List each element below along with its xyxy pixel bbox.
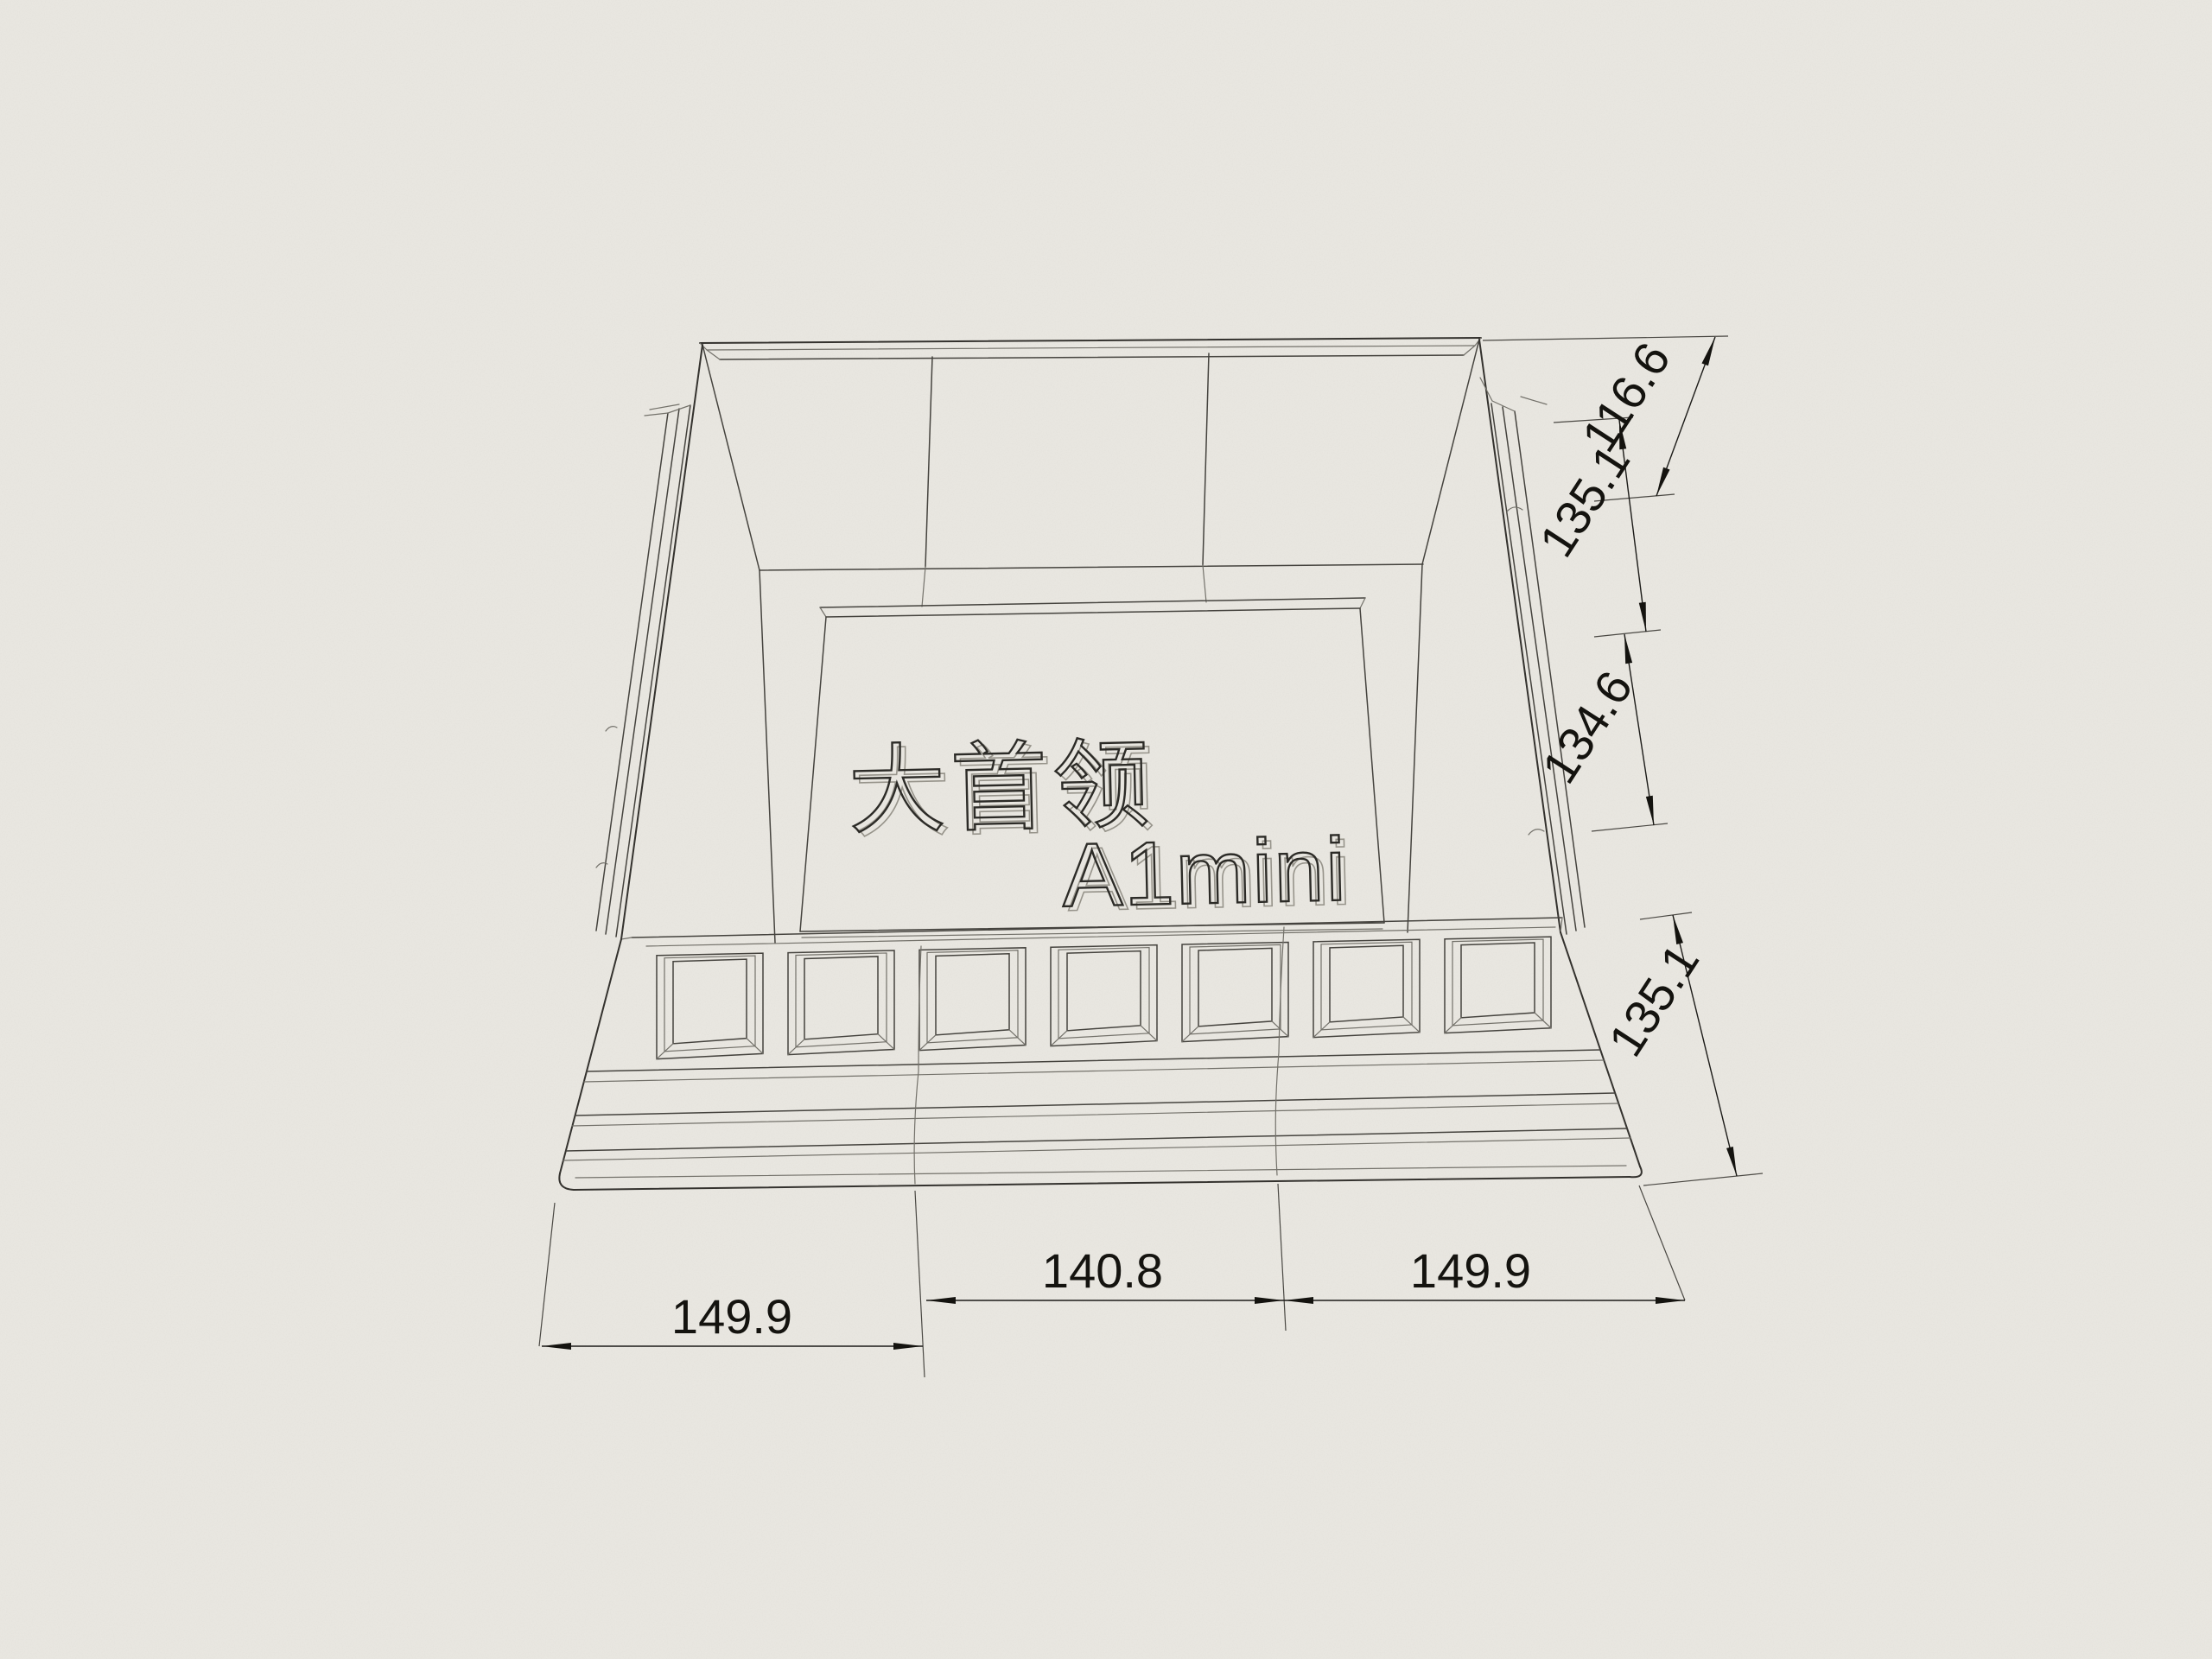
cad-drawing-canvas: 大首领 大首领 A1mini A1mini bbox=[0, 0, 2212, 1659]
plate-subtitle-outline: A1mini bbox=[1061, 819, 1348, 925]
dim-label-bottom-left: 149.9 bbox=[671, 1289, 792, 1344]
dim-label-bottom-right: 149.9 bbox=[1410, 1243, 1531, 1298]
dim-label-bottom-middle: 140.8 bbox=[1042, 1243, 1163, 1298]
cad-viewport: 大首领 大首领 A1mini A1mini bbox=[0, 0, 2212, 1659]
